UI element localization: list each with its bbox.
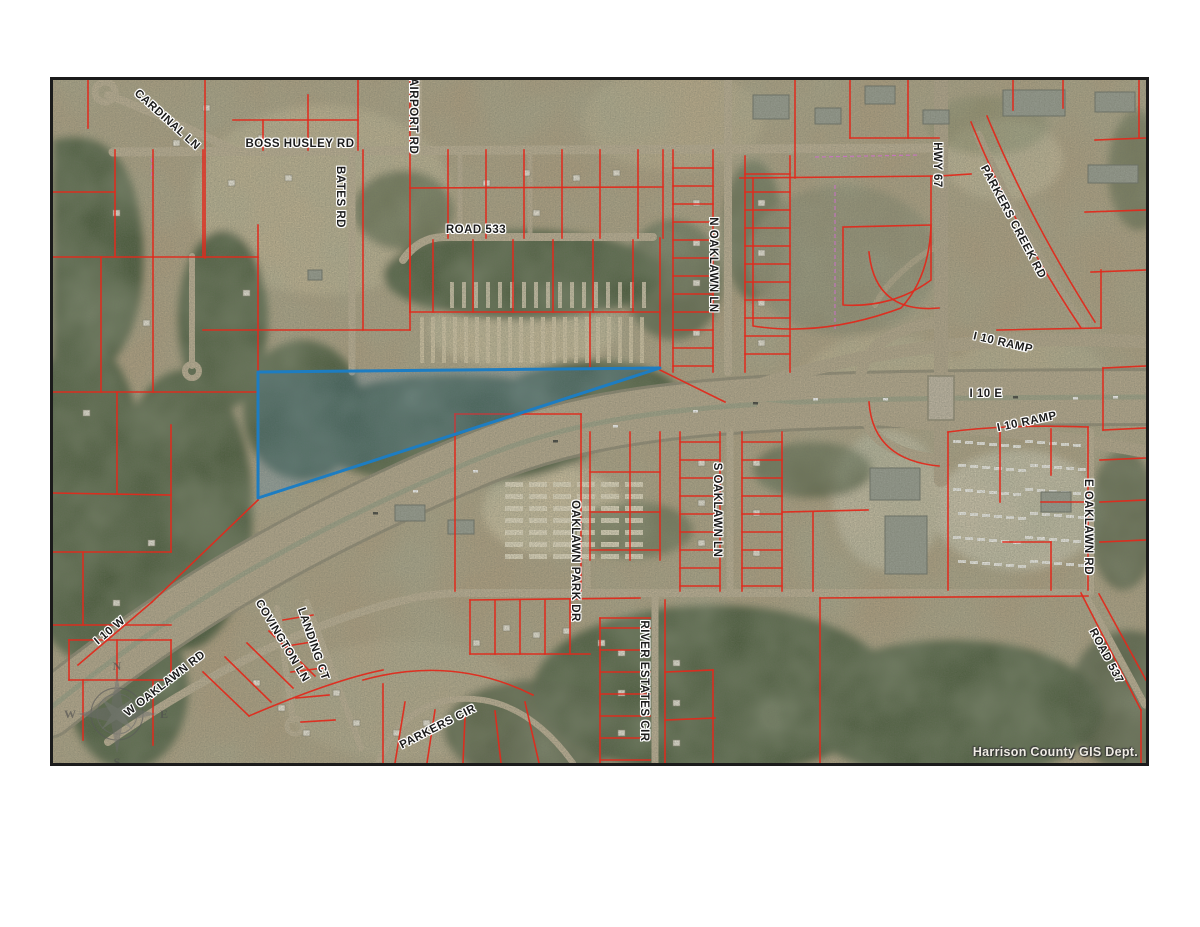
map-canvas: N E S W [53, 80, 1146, 763]
compass-north-label: N [113, 659, 122, 673]
compass-east-label: E [160, 707, 168, 721]
gis-map: N E S W CARDINAL LNBOSS HUSLEY RDAIRPORT… [50, 77, 1149, 766]
map-credit: Harrison County GIS Dept. [973, 745, 1138, 759]
map-page: N E S W CARDINAL LNBOSS HUSLEY RDAIRPORT… [0, 0, 1200, 927]
compass-west-label: W [64, 707, 76, 721]
compass-south-label: S [114, 755, 121, 763]
